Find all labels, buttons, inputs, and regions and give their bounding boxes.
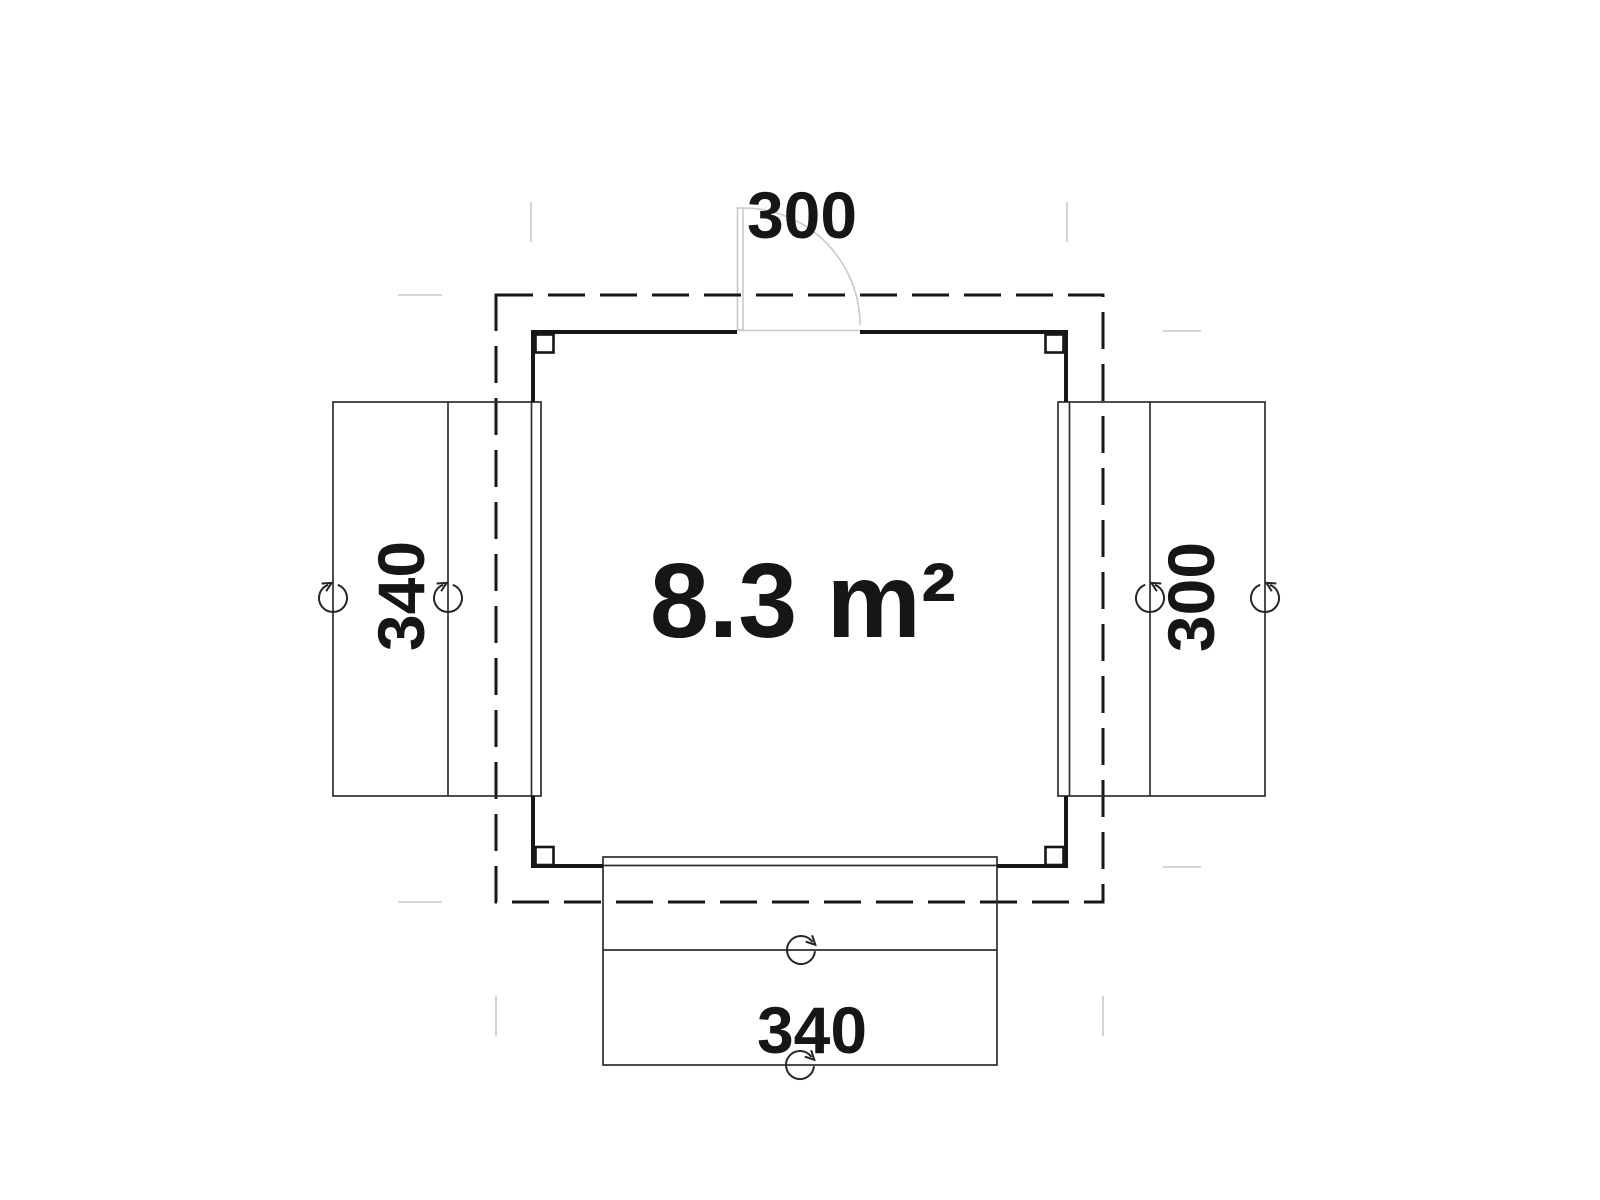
- dimension-left: 340: [364, 541, 438, 651]
- area-label: 8.3 m²: [650, 542, 956, 660]
- corner-post-bottom-right: [1046, 847, 1064, 865]
- dimension-right: 300: [1154, 542, 1228, 652]
- panel-lines: [333, 402, 1265, 1065]
- corner-post-top-right: [1046, 335, 1064, 353]
- dimension-bottom: 340: [757, 993, 867, 1067]
- corner-post-bottom-left: [536, 847, 554, 865]
- floor-plan-canvas: 300 340 340 300 8.3 m²: [0, 0, 1600, 1200]
- labels: 300 340 340 300 8.3 m²: [364, 178, 1228, 1067]
- door-leaf: [738, 208, 744, 330]
- corner-post-top-left: [536, 335, 554, 353]
- dimension-top: 300: [747, 178, 857, 252]
